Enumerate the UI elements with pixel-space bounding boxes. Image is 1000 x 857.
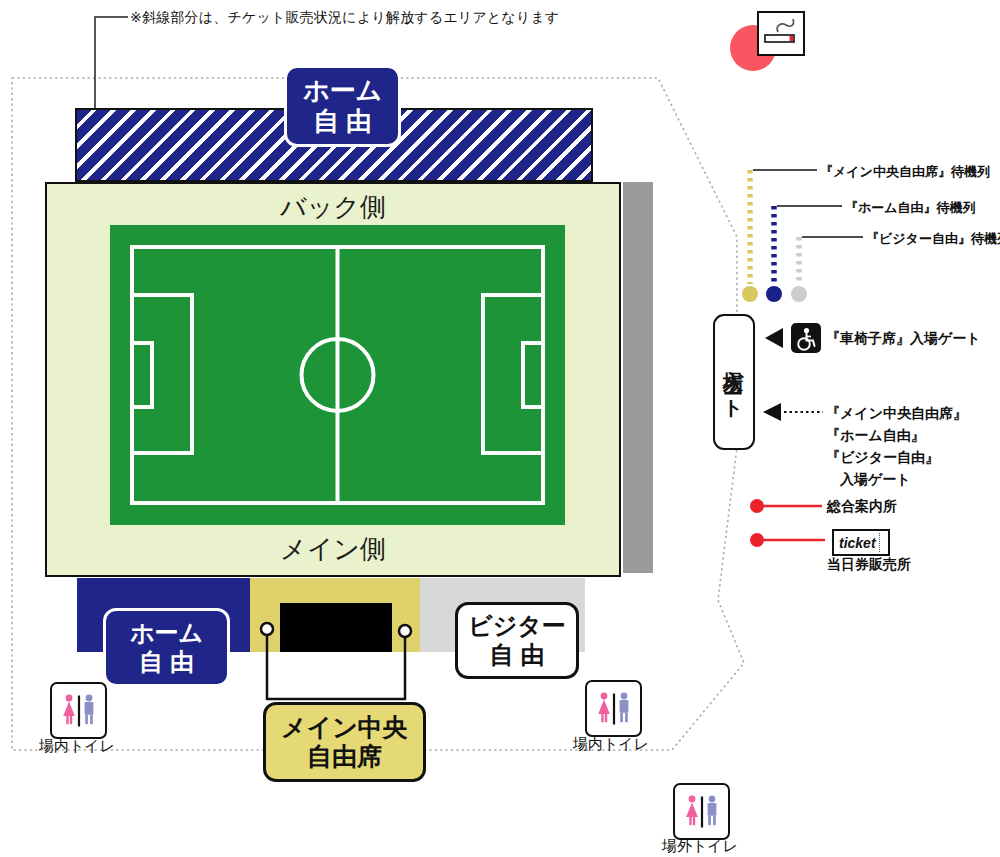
wheelchair-gate-text: 『車椅子席』入場ゲート (826, 330, 981, 348)
ticket-box: ticket (832, 529, 890, 556)
queue-label-home: 『ホーム自由』待機列 (845, 199, 976, 217)
restroom-label-outside: 場外トイレ (661, 837, 739, 856)
smoking-area-icon (757, 11, 805, 56)
queue-label-visitor: 『ビジター自由』待機列 (866, 230, 1000, 248)
back-stand-label: バック側 (47, 190, 619, 225)
restroom-icon-inside-left (50, 682, 107, 739)
restroom-label-inside-right: 場内トイレ (573, 735, 649, 754)
main-center-line1: メイン中央 (281, 713, 408, 743)
main-stand-label: メイン側 (47, 532, 619, 567)
home-free-top-line1: ホーム (303, 75, 382, 106)
ticket-box-divider (879, 533, 880, 552)
shared-gate-line-4: 入場ゲート (826, 468, 967, 490)
visitor-free-line1: ビジター (468, 612, 566, 640)
shared-gate-line-2: 『ホーム自由』 (826, 424, 967, 446)
queue-label-main-center: 『メイン中央自由席』待機列 (820, 163, 990, 181)
home-free-top-line2: 自由 (306, 106, 379, 137)
soccer-pitch (110, 225, 565, 525)
note-leader-line (95, 17, 128, 110)
restroom-label-inside-left: 場内トイレ (39, 737, 115, 756)
shared-gate-text: 『メイン中央自由席』 『ホーム自由』 『ビジター自由』 入場ゲート (826, 402, 967, 490)
shared-gate-line-3: 『ビジター自由』 (826, 446, 967, 468)
visitor-free-line2: 自由 (483, 641, 552, 669)
stadium-stand: バック側 メイン側 (45, 182, 621, 577)
stadium-seating-map: ※斜線部分は、チケット販売状況により解放するエリアとなります バック側 メイン側 (0, 0, 1000, 857)
home-free-bottom-line2: 自由 (132, 648, 201, 676)
info-center-label: 総合案内所 (827, 498, 897, 516)
main-center-free-label: メイン中央 自由席 (263, 702, 426, 782)
main-center-block (280, 603, 392, 652)
side-stand-gray-strip (623, 182, 653, 573)
entrance-gate-text: 入場ゲート (721, 354, 748, 409)
note-text: ※斜線部分は、チケット販売状況により解放するエリアとなります (130, 9, 560, 27)
restroom-icon-outside (673, 783, 730, 840)
ticket-box-text: ticket (834, 535, 876, 551)
ticket-office-label: 当日券販売所 (827, 556, 911, 574)
cigarette-icon (759, 13, 803, 49)
home-free-bottom-line1: ホーム (130, 619, 203, 647)
main-center-line2: 自由席 (307, 742, 382, 772)
restroom-icon-inside-right (585, 680, 642, 737)
shared-gate-line-1: 『メイン中央自由席』 (826, 402, 967, 424)
home-free-label-top: ホーム 自由 (284, 65, 401, 147)
visitor-free-label: ビジター 自由 (455, 602, 579, 679)
entrance-gate-label: 入場ゲート (713, 314, 755, 450)
home-free-label-bottom: ホーム 自由 (103, 608, 230, 687)
